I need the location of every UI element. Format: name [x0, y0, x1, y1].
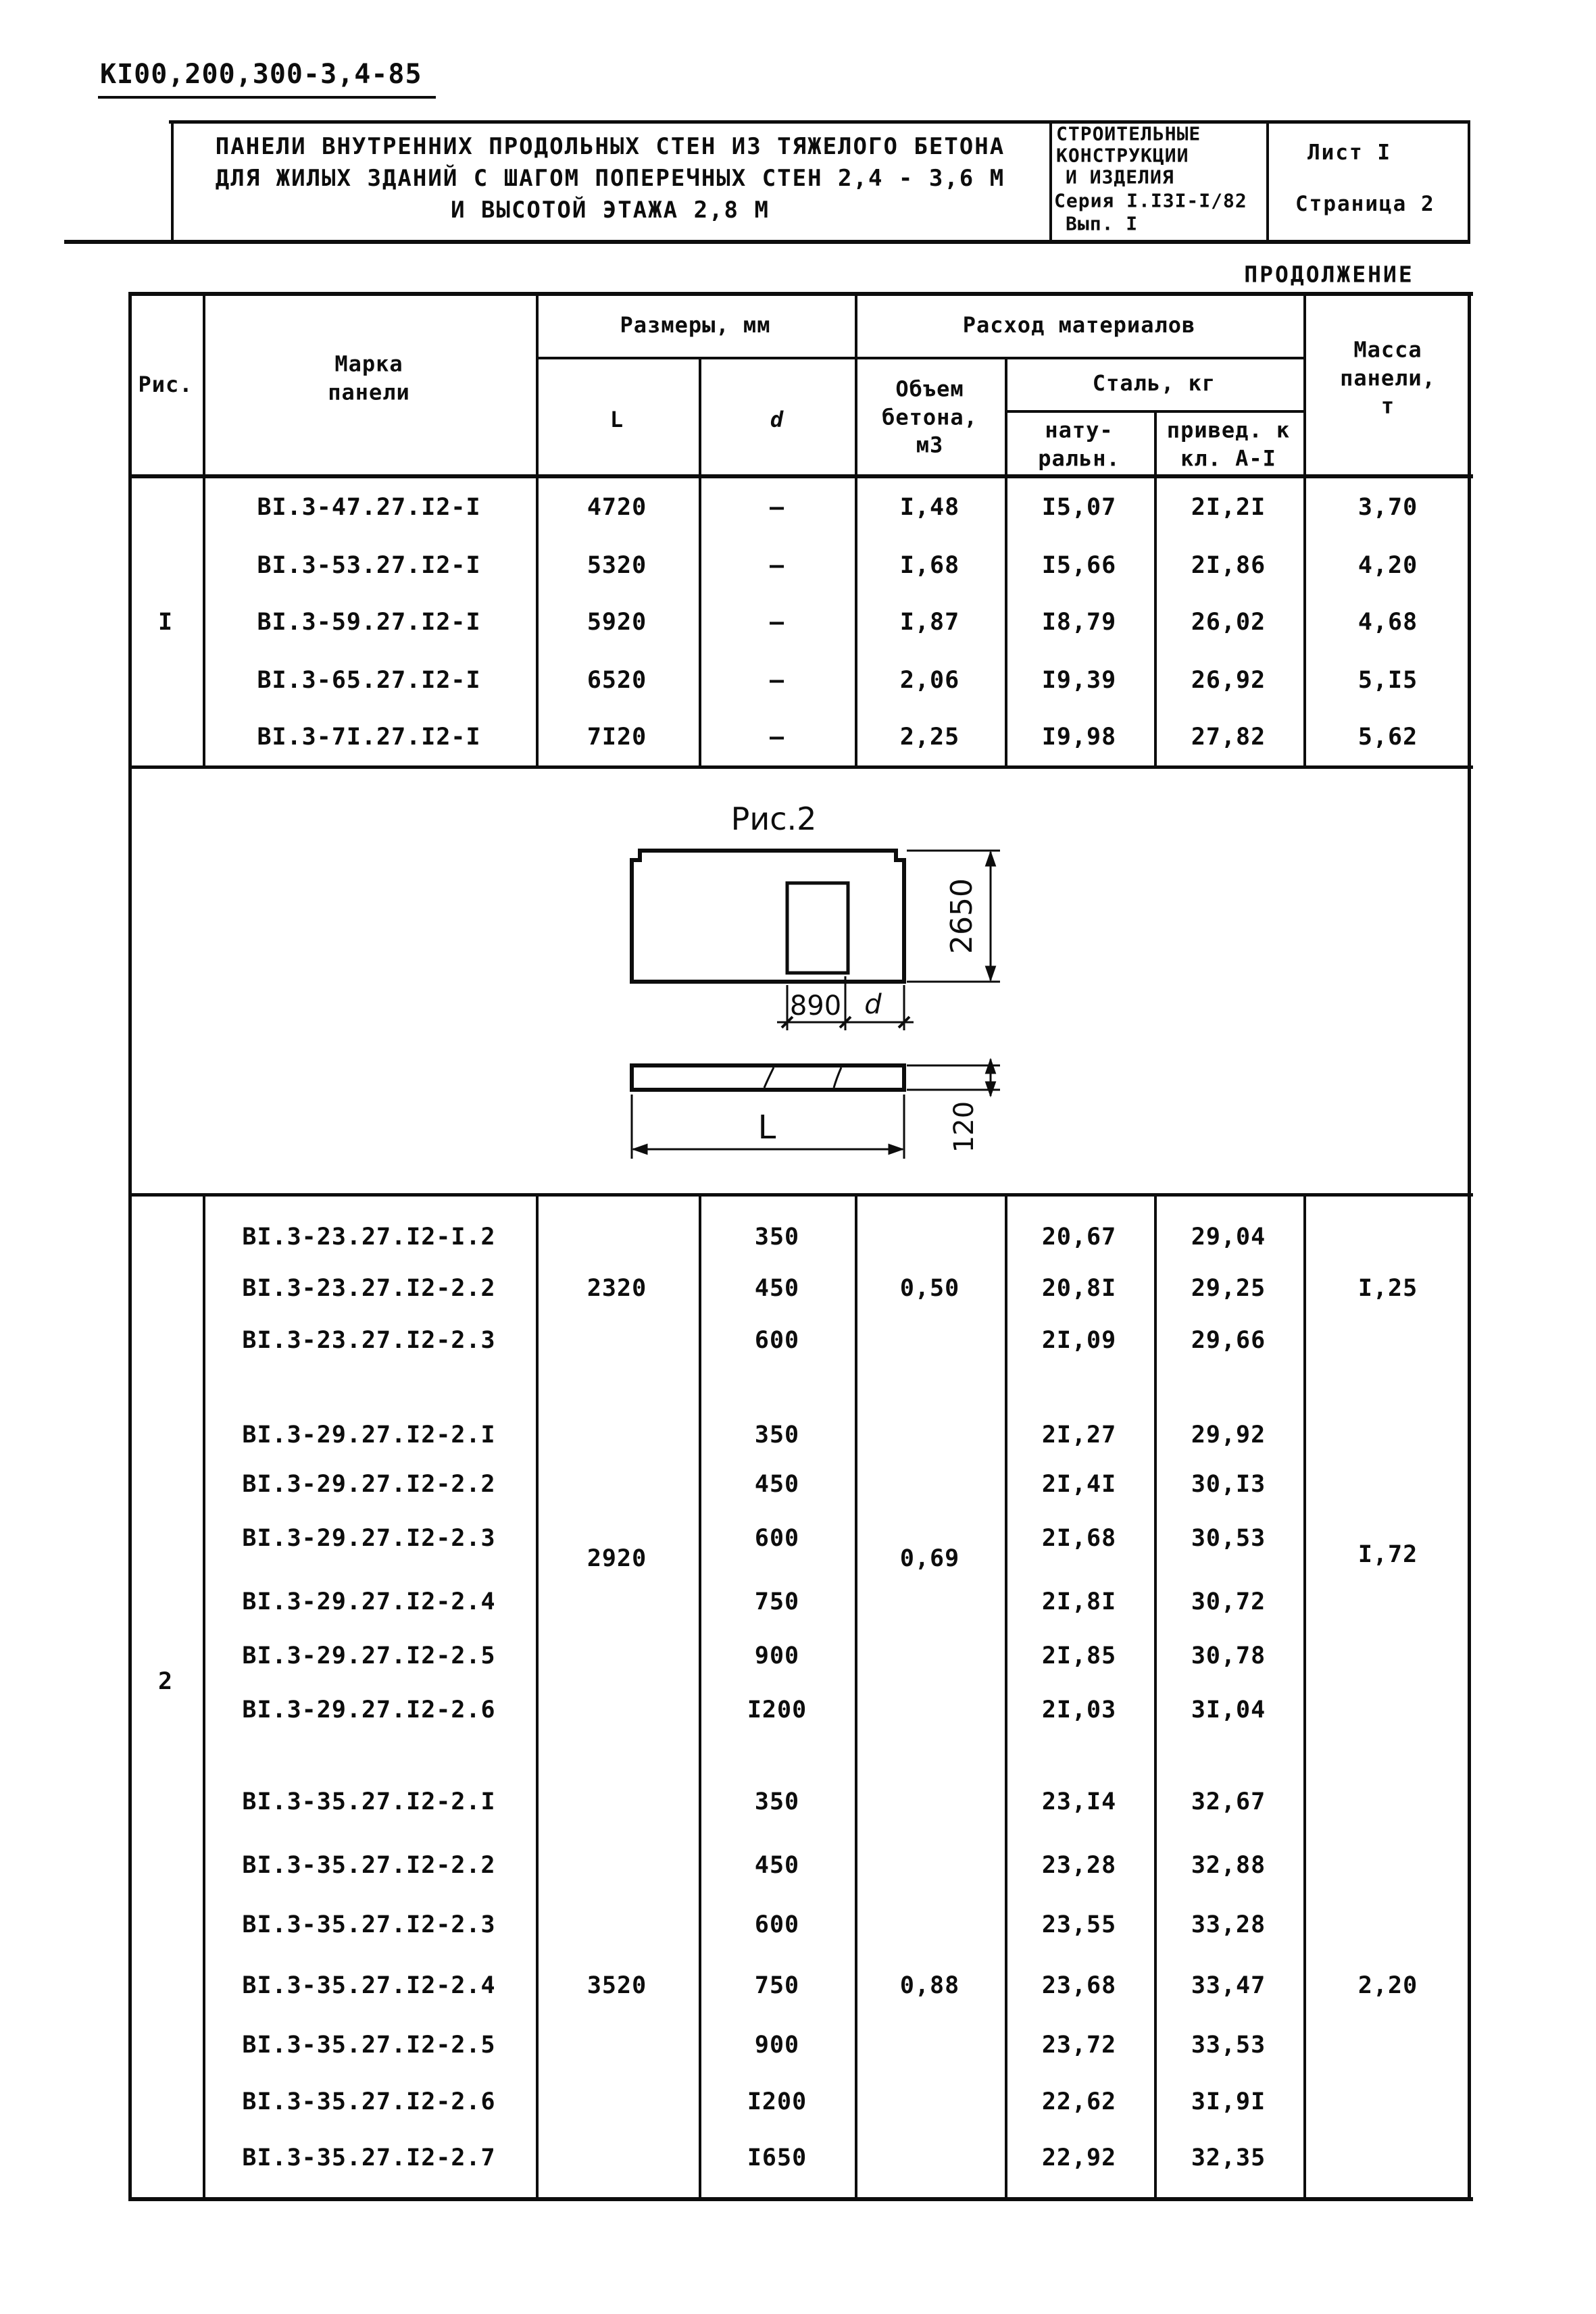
cell-mark: ВI.3-29.27.I2-2.6	[242, 1696, 495, 1726]
sheet-number: Лист I	[1307, 141, 1391, 165]
cell-steel-nat: 2I,8I	[1042, 1588, 1116, 1617]
cell-mass: 2,20	[1358, 1971, 1418, 2001]
cell-d: 600	[755, 1911, 799, 1940]
cell-steel-red: 30,72	[1191, 1588, 1266, 1617]
series-number: Серия I.I3I-I/82	[1054, 190, 1247, 212]
cell-vol: I,87	[900, 608, 959, 638]
cell-d: 450	[755, 1851, 799, 1881]
grid-line-d-upper	[855, 292, 857, 765]
cell-L: 3520	[587, 1971, 647, 2001]
col-header-mark: Марка панели	[328, 350, 410, 406]
cell-vol: 0,69	[900, 1544, 959, 1574]
cell-L: 2920	[587, 1544, 647, 1574]
cell-steel-red: 33,28	[1191, 1911, 1266, 1940]
fig-number-cell: I	[158, 608, 173, 638]
header-box-top-line	[169, 120, 1470, 124]
door-offset-label: d	[864, 989, 882, 1020]
grid-line-d-lower	[855, 1193, 857, 2201]
cell-mark: ВI.3-35.27.I2-2.I	[242, 1788, 495, 1817]
series-issue: Вып. I	[1066, 213, 1138, 235]
document-page: КI00,200,300-3,4-85 ПАНЕЛИ ВНУТРЕННИХ ПР…	[0, 0, 1596, 2314]
cell-vol: 2,06	[900, 666, 959, 696]
cell-mass: 3,70	[1358, 493, 1418, 523]
col-header-mass: Масса панели, т	[1340, 336, 1436, 421]
cell-steel-nat: I9,39	[1042, 666, 1116, 696]
table-subheader-line	[536, 357, 1303, 359]
cell-steel-red: 32,88	[1191, 1851, 1266, 1881]
cell-steel-nat: 20,8I	[1042, 1274, 1116, 1304]
grid-line-mark-upper	[536, 292, 539, 765]
fig-number-cell: 2	[158, 1667, 173, 1697]
cell-L: 4720	[587, 493, 647, 523]
cell-vol: 0,50	[900, 1274, 959, 1304]
cell-mark: ВI.3-65.27.I2-I	[257, 666, 480, 696]
cell-d: 600	[755, 1524, 799, 1554]
cell-d: 750	[755, 1971, 799, 2001]
cell-L: 5320	[587, 551, 647, 581]
cell-steel-nat: 22,92	[1042, 2144, 1116, 2173]
panel-outline	[632, 851, 904, 982]
cell-steel-red: 3I,9I	[1191, 2088, 1266, 2117]
cell-d: 450	[755, 1470, 799, 1500]
cell-steel-nat: 2I,85	[1042, 1642, 1116, 1671]
cell-steel-nat: 2I,09	[1042, 1326, 1116, 1356]
cell-mark: ВI.3-23.27.I2-2.3	[242, 1326, 495, 1356]
door-width-label: 890	[790, 990, 841, 1022]
document-code: КI00,200,300-3,4-85	[100, 59, 422, 90]
grid-line-fig-upper	[203, 292, 205, 765]
col-header-concrete: Объем бетона, м3	[882, 376, 978, 460]
cell-mark: ВI.3-35.27.I2-2.7	[242, 2144, 495, 2173]
col-header-dims: Размеры, мм	[620, 311, 771, 340]
cell-mass: 4,20	[1358, 551, 1418, 581]
cell-d: 350	[755, 1421, 799, 1451]
cell-mark: ВI.3-29.27.I2-2.I	[242, 1421, 495, 1451]
cell-d: —	[770, 666, 784, 696]
col-header-steel-red: привед. к кл. А-I	[1167, 416, 1290, 472]
grid-line-vol-upper	[1005, 357, 1007, 765]
figure-panel-drawing: Рис.2 2650 890 d 120 L	[574, 770, 1047, 1209]
grid-line-L-upper	[699, 357, 701, 765]
cell-steel-red: 2I,86	[1191, 551, 1266, 581]
cell-steel-red: 33,47	[1191, 1971, 1266, 2001]
cell-mark: ВI.3-35.27.I2-2.3	[242, 1911, 495, 1940]
header-box-divider-2	[1266, 120, 1269, 242]
length-dim-label: L	[758, 1109, 776, 1147]
cell-mass: 4,68	[1358, 608, 1418, 638]
col-header-L: L	[610, 406, 624, 434]
cell-steel-nat: 2I,4I	[1042, 1470, 1116, 1500]
cell-steel-red: 26,92	[1191, 666, 1266, 696]
document-title-line3: И ВЫСОТОЙ ЭТАЖА 2,8 М	[451, 196, 770, 225]
header-box-left-line	[171, 120, 174, 242]
cell-steel-red: 29,92	[1191, 1421, 1266, 1451]
cell-steel-red: 26,02	[1191, 608, 1266, 638]
cell-vol: 0,88	[900, 1971, 959, 2001]
cell-d: 900	[755, 1642, 799, 1671]
cell-d: 600	[755, 1326, 799, 1356]
cell-mass: I,72	[1358, 1540, 1418, 1570]
cell-steel-red: 32,67	[1191, 1788, 1266, 1817]
document-title-line2: ДЛЯ ЖИЛЫХ ЗДАНИЙ С ШАГОМ ПОПЕРЕЧНЫХ СТЕН…	[216, 164, 1005, 193]
cell-mark: ВI.3-35.27.I2-2.5	[242, 2031, 495, 2061]
cell-steel-red: 27,82	[1191, 723, 1266, 753]
door-opening	[787, 883, 848, 973]
cell-mark: ВI.3-35.27.I2-2.4	[242, 1971, 495, 2001]
break-line	[764, 1067, 774, 1088]
cell-steel-nat: 23,I4	[1042, 1788, 1116, 1817]
cell-steel-nat: 23,55	[1042, 1911, 1116, 1940]
cell-steel-red: 32,35	[1191, 2144, 1266, 2173]
grid-line-mass-upper	[1303, 292, 1306, 765]
cell-d: 450	[755, 1274, 799, 1304]
cell-steel-red: 29,66	[1191, 1326, 1266, 1356]
cell-d: 350	[755, 1223, 799, 1253]
cell-mark: ВI.3-29.27.I2-2.4	[242, 1588, 495, 1617]
cell-mass: 5,62	[1358, 723, 1418, 753]
grid-line-L-lower	[699, 1193, 701, 2201]
cell-steel-red: 29,04	[1191, 1223, 1266, 1253]
cell-mark: ВI.3-53.27.I2-I	[257, 551, 480, 581]
cell-L: 2320	[587, 1274, 647, 1304]
cell-steel-nat: I5,66	[1042, 551, 1116, 581]
header-box-right-line	[1468, 120, 1470, 242]
cell-vol: I,48	[900, 493, 959, 523]
cell-steel-nat: 23,28	[1042, 1851, 1116, 1881]
cell-mass: 5,I5	[1358, 666, 1418, 696]
table-top-border	[128, 292, 1473, 296]
col-header-d: d	[770, 406, 784, 434]
cell-steel-nat: I5,07	[1042, 493, 1116, 523]
cell-d: —	[770, 493, 784, 523]
cell-d: I650	[747, 2144, 807, 2173]
cell-d: —	[770, 723, 784, 753]
cell-d: 750	[755, 1588, 799, 1617]
grid-line-mark-lower	[536, 1193, 539, 2201]
cell-steel-red: 30,78	[1191, 1642, 1266, 1671]
cell-vol: I,68	[900, 551, 959, 581]
cell-mark: ВI.3-7I.27.I2-I	[257, 723, 480, 753]
cell-L: 5920	[587, 608, 647, 638]
series-block-line3: И ИЗДЕЛИЯ	[1066, 166, 1174, 188]
cell-steel-red: 3I,04	[1191, 1696, 1266, 1726]
continuation-label: ПРОДОЛЖЕНИЕ	[1244, 260, 1414, 288]
cell-d: I200	[747, 2088, 807, 2117]
cell-steel-red: 2I,2I	[1191, 493, 1266, 523]
grid-line-nat-upper	[1154, 410, 1157, 765]
col-header-steel-nat: нату- ральн.	[1038, 416, 1120, 472]
cell-mass: I,25	[1358, 1274, 1418, 1304]
cell-steel-nat: 23,68	[1042, 1971, 1116, 2001]
cell-vol: 2,25	[900, 723, 959, 753]
cell-steel-nat: 22,62	[1042, 2088, 1116, 2117]
cell-steel-red: 29,25	[1191, 1274, 1266, 1304]
document-title-line1: ПАНЕЛИ ВНУТРЕННИХ ПРОДОЛЬНЫХ СТЕН ИЗ ТЯЖ…	[216, 132, 1005, 161]
cell-mark: ВI.3-59.27.I2-I	[257, 608, 480, 638]
col-header-fig: Рис.	[138, 371, 193, 399]
grid-line-vol-lower	[1005, 1193, 1007, 2201]
header-box-divider-1	[1049, 120, 1052, 242]
cell-steel-red: 30,I3	[1191, 1470, 1266, 1500]
cell-mark: ВI.3-35.27.I2-2.6	[242, 2088, 495, 2117]
cell-steel-nat: 2I,68	[1042, 1524, 1116, 1554]
cell-d: —	[770, 551, 784, 581]
col-header-materials: Расход материалов	[963, 311, 1196, 340]
cell-d: 350	[755, 1788, 799, 1817]
table-block1-bottom-line	[128, 765, 1473, 769]
page-number: Страница 2	[1295, 192, 1435, 216]
cell-mark: ВI.3-23.27.I2-I.2	[242, 1223, 495, 1253]
cell-mark: ВI.3-47.27.I2-I	[257, 493, 480, 523]
cell-d: I200	[747, 1696, 807, 1726]
code-underline	[98, 96, 436, 99]
table-left-border	[128, 292, 132, 2201]
cell-mark: ВI.3-29.27.I2-2.3	[242, 1524, 495, 1554]
series-block-line1: СТРОИТЕЛЬНЫЕ	[1056, 123, 1201, 145]
cell-steel-nat: 20,67	[1042, 1223, 1116, 1253]
grid-line-fig-lower	[203, 1193, 205, 2201]
cell-steel-nat: 23,72	[1042, 2031, 1116, 2061]
table-bottom-border	[128, 2197, 1473, 2201]
cell-steel-nat: I8,79	[1042, 608, 1116, 638]
figure-caption: Рис.2	[731, 801, 817, 837]
table-header-bottom-line	[128, 474, 1473, 478]
grid-line-mass-lower	[1303, 1193, 1306, 2201]
col-header-steel: Сталь, кг	[1093, 370, 1216, 398]
cell-mark: ВI.3-23.27.I2-2.2	[242, 1274, 495, 1304]
cell-L: 6520	[587, 666, 647, 696]
cell-mark: ВI.3-29.27.I2-2.2	[242, 1470, 495, 1500]
cell-steel-nat: 2I,03	[1042, 1696, 1116, 1726]
cell-mark: ВI.3-29.27.I2-2.5	[242, 1642, 495, 1671]
table-right-border	[1468, 292, 1471, 2201]
cell-d: —	[770, 608, 784, 638]
break-line	[834, 1067, 841, 1088]
series-block-line2: КОНСТРУКЦИИ	[1056, 145, 1189, 167]
cell-steel-nat: 2I,27	[1042, 1421, 1116, 1451]
cell-steel-red: 33,53	[1191, 2031, 1266, 2061]
height-dim-label: 2650	[945, 878, 979, 954]
header-box-bottom-line	[64, 240, 1470, 244]
cell-d: 900	[755, 2031, 799, 2061]
cell-L: 7I20	[587, 723, 647, 753]
cell-steel-nat: I9,98	[1042, 723, 1116, 753]
grid-line-nat-lower	[1154, 1193, 1157, 2201]
cell-mark: ВI.3-35.27.I2-2.2	[242, 1851, 495, 1881]
thickness-dim-label: 120	[949, 1101, 980, 1153]
cell-steel-red: 30,53	[1191, 1524, 1266, 1554]
